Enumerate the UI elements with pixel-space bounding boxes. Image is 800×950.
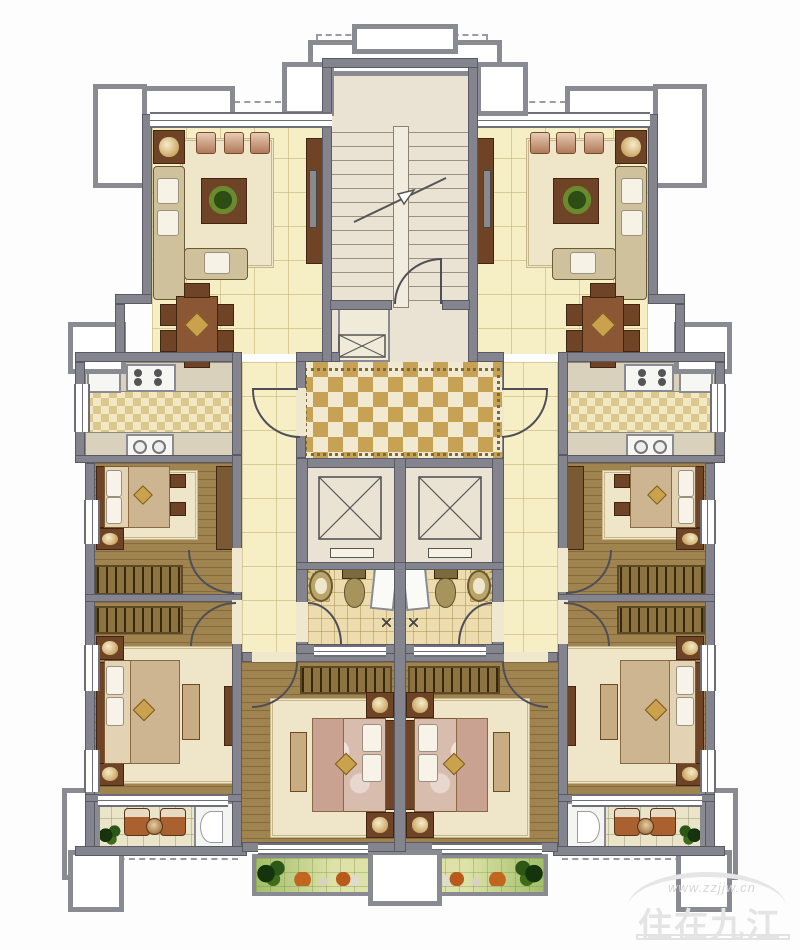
bedroom1-nightstand xyxy=(96,528,124,550)
sofa-cushion-3 xyxy=(204,252,230,274)
balcony-window xyxy=(98,794,228,807)
wall-tower-top xyxy=(322,58,478,68)
bathroom-window xyxy=(314,645,386,657)
elevator-right-x xyxy=(418,476,482,540)
bathroom-door-gap xyxy=(296,602,308,642)
dining-chair-r1 xyxy=(217,304,234,326)
wall-living-left xyxy=(142,114,152,304)
wall-step-h xyxy=(115,294,152,304)
bedroom1-pillow-1 xyxy=(106,470,122,497)
wall-party xyxy=(394,562,406,852)
center-nightstand-2 xyxy=(366,812,394,838)
corner-lamp-table xyxy=(153,130,185,164)
master-window-2 xyxy=(84,750,100,792)
pouf-2 xyxy=(224,132,244,154)
bedroom1-stool-2 xyxy=(170,502,186,516)
master-window-1 xyxy=(84,645,100,691)
master-pillow-2 xyxy=(106,697,124,726)
pouf-1 xyxy=(196,132,216,154)
dining-chair-l1 xyxy=(160,304,177,326)
kitchen-window xyxy=(74,384,90,432)
balcony-chair-2 xyxy=(160,808,186,836)
closet-master xyxy=(95,606,183,634)
washbasin xyxy=(309,570,333,602)
tv xyxy=(309,170,317,228)
bedroom1-stool-1 xyxy=(170,474,186,488)
palm-plant xyxy=(254,856,294,888)
center-pillow-1 xyxy=(362,724,382,752)
closet-secondary xyxy=(95,565,183,595)
living-window xyxy=(150,112,332,128)
balcony-table xyxy=(146,818,163,835)
sofa-cushion-1 xyxy=(157,178,179,204)
watermark-url: www.zzjjw.cn xyxy=(668,880,756,895)
wall-bedroom1-top xyxy=(75,455,242,463)
ac-platform-corner xyxy=(68,850,124,912)
wall-kitchen-top xyxy=(75,352,242,362)
master-bench xyxy=(182,684,200,740)
floor-plan: www.zzjjw.cn 住在九江 xyxy=(0,0,800,950)
dining-chair-l2 xyxy=(160,330,177,352)
master-pillow-1 xyxy=(106,666,124,695)
toilet xyxy=(344,578,365,608)
center-bedroom-door-gap xyxy=(252,652,296,662)
ac-platform-center xyxy=(368,850,442,906)
floor-drain xyxy=(382,618,391,627)
watermark-block-underline xyxy=(636,934,790,940)
wall-elev-left xyxy=(296,458,308,570)
balcony-plant xyxy=(96,822,128,846)
stove xyxy=(126,364,176,392)
wall-elev-right xyxy=(492,458,504,570)
dining-chair-r2 xyxy=(217,330,234,352)
wall-lobby-cap xyxy=(296,352,340,362)
wall-stair-bottom-b xyxy=(442,300,470,310)
wall-tower-right xyxy=(468,58,478,362)
bedroom1-pillow-2 xyxy=(106,497,122,524)
coffee-table-plant xyxy=(205,182,241,218)
closet-center-bedroom xyxy=(300,666,392,694)
sofa-cushion-2 xyxy=(157,210,179,236)
dining-chair-top xyxy=(184,283,210,298)
wall-hall-divider xyxy=(232,455,242,852)
elevator-right-doorslot xyxy=(428,548,472,558)
elevator-left-doorslot xyxy=(330,548,374,558)
parapet-top-corner-v xyxy=(93,84,147,188)
wall-closet-divider xyxy=(85,594,242,602)
stair-door-leaf xyxy=(440,258,442,304)
bedroom1-window xyxy=(84,500,100,544)
center-nightstand-1 xyxy=(366,692,394,718)
rocks xyxy=(290,872,360,886)
master-nightstand-1 xyxy=(96,636,124,660)
wall-kitchen-right xyxy=(232,352,242,455)
watermark-logo: 住在九江 xyxy=(638,898,794,938)
wall-elev-divider xyxy=(394,458,406,570)
stair-direction-arrow xyxy=(340,150,460,240)
master-nightstand-2 xyxy=(96,762,124,786)
parapet-tower-top xyxy=(352,24,458,54)
wall-tower-left xyxy=(322,58,332,362)
wall-step-v xyxy=(115,304,125,354)
parapet-wing-right xyxy=(476,62,528,116)
elevator-left-x xyxy=(318,476,382,540)
kitchen-floor xyxy=(85,390,232,432)
center-bench xyxy=(290,732,307,792)
wall-stair-bottom-a xyxy=(330,300,392,310)
center-bedroom-window xyxy=(258,843,368,855)
entry-door-leaf xyxy=(252,388,298,390)
pouf-3 xyxy=(250,132,270,154)
center-pillow-2 xyxy=(362,754,382,782)
lobby-border xyxy=(304,368,500,456)
duct-x-brace xyxy=(338,334,386,358)
wall-balcony-outer xyxy=(75,846,247,856)
